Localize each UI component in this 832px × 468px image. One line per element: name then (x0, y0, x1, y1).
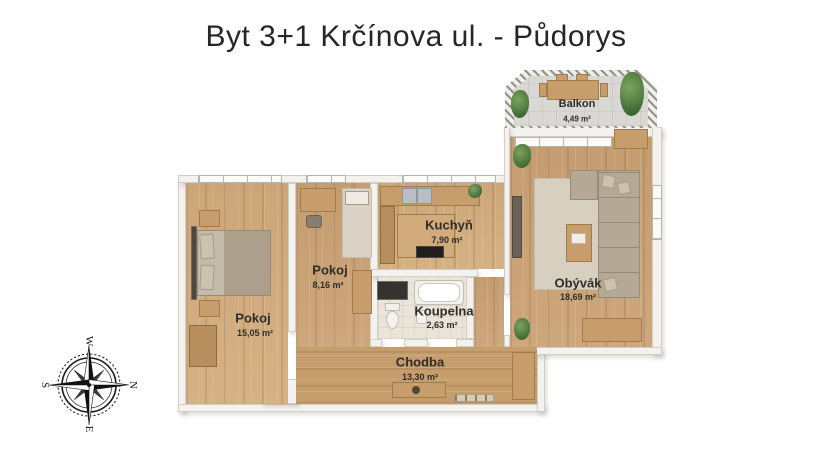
wall (178, 404, 545, 412)
window (402, 175, 496, 183)
sofa-pillow (601, 174, 616, 189)
storage-bench (582, 318, 642, 342)
compass-east-label: E (83, 426, 95, 433)
sofa-pillow (617, 181, 631, 195)
room-name: Chodba (396, 355, 444, 370)
room-name: Koupelna (414, 304, 473, 319)
wall (178, 175, 186, 412)
balcony-chair (556, 74, 568, 81)
room-label-chodba: Chodba (396, 355, 444, 370)
room-area: 15,05 m² (237, 328, 273, 338)
dresser (352, 270, 372, 314)
balcony-door (614, 129, 648, 149)
kitchen-sink-divider (416, 189, 418, 203)
washing-machine (377, 281, 408, 300)
room-label-obyvak: Obývák (555, 276, 602, 291)
nightstand (199, 210, 220, 227)
wall (652, 127, 662, 355)
wardrobe (189, 325, 217, 367)
floor-entry-corridor (474, 277, 504, 347)
window (198, 175, 282, 183)
coffee-table-tray (571, 233, 586, 244)
room-area-balkon: 4,49 m² (563, 115, 591, 124)
hall-closet (512, 352, 535, 400)
sofa-chaise (570, 170, 598, 200)
desk (300, 188, 336, 212)
stove-cooktop (416, 246, 444, 258)
balcony-chair (539, 83, 547, 97)
room-label-koupelna: Koupelna (414, 304, 473, 319)
room-name: Kuchyň (425, 218, 473, 233)
room-area: 4,49 m² (563, 115, 591, 124)
room-area: 8,16 m² (312, 280, 343, 290)
compass-west-label: W (83, 336, 95, 347)
bed-pillow (199, 234, 215, 260)
room-label-pokoj-stredni: Pokoj (312, 263, 347, 278)
room-name: Pokoj (312, 263, 347, 278)
room-area-pokoj-velky: 15,05 m² (237, 328, 273, 338)
wall (404, 339, 428, 347)
room-area-koupelna: 2,63 m² (426, 320, 457, 330)
room-area: 13,30 m² (402, 372, 438, 382)
compass-north-label: N (127, 381, 138, 389)
nightstand (199, 300, 220, 317)
room-name: Pokoj (235, 311, 270, 326)
hall-console-decor (412, 386, 420, 394)
wall (456, 339, 474, 347)
balcony-chair (576, 74, 588, 81)
compass-south-label: S (40, 382, 51, 388)
room-area-kuchyn: 7,90 m² (431, 235, 462, 245)
wall (370, 269, 478, 277)
bed-pillow (199, 265, 214, 291)
window (306, 175, 346, 183)
room-area: 7,90 m² (431, 235, 462, 245)
shoe-rack (454, 394, 494, 402)
desk-chair (306, 215, 322, 228)
toilet-tank (385, 303, 400, 311)
tv-cabinet (512, 196, 522, 258)
room-label-pokoj-velky: Pokoj (235, 311, 270, 326)
window (652, 185, 662, 240)
balcony-table (547, 80, 599, 100)
room-label-balkon: Balkon (559, 98, 596, 110)
balcony-chair (600, 83, 608, 97)
bed-pillow (345, 191, 369, 205)
bathtub-inner (418, 283, 460, 302)
room-area-chodba: 13,30 m² (402, 372, 438, 382)
wall (288, 183, 296, 332)
room-area: 18,69 m² (560, 292, 596, 302)
compass-rose-icon: W N E S (40, 336, 138, 434)
window-balcony (514, 137, 612, 147)
room-label-kuchyn: Kuchyň (425, 218, 473, 233)
wall (370, 339, 382, 347)
kitchen-cabinet-column (380, 206, 395, 264)
room-area-obyvak: 18,69 m² (560, 292, 596, 302)
wall (537, 347, 545, 412)
room-name: Obývák (555, 276, 602, 291)
room-name: Balkon (559, 98, 596, 110)
room-area: 2,63 m² (426, 320, 457, 330)
room-area-pokoj-stredni: 8,16 m² (312, 280, 343, 290)
